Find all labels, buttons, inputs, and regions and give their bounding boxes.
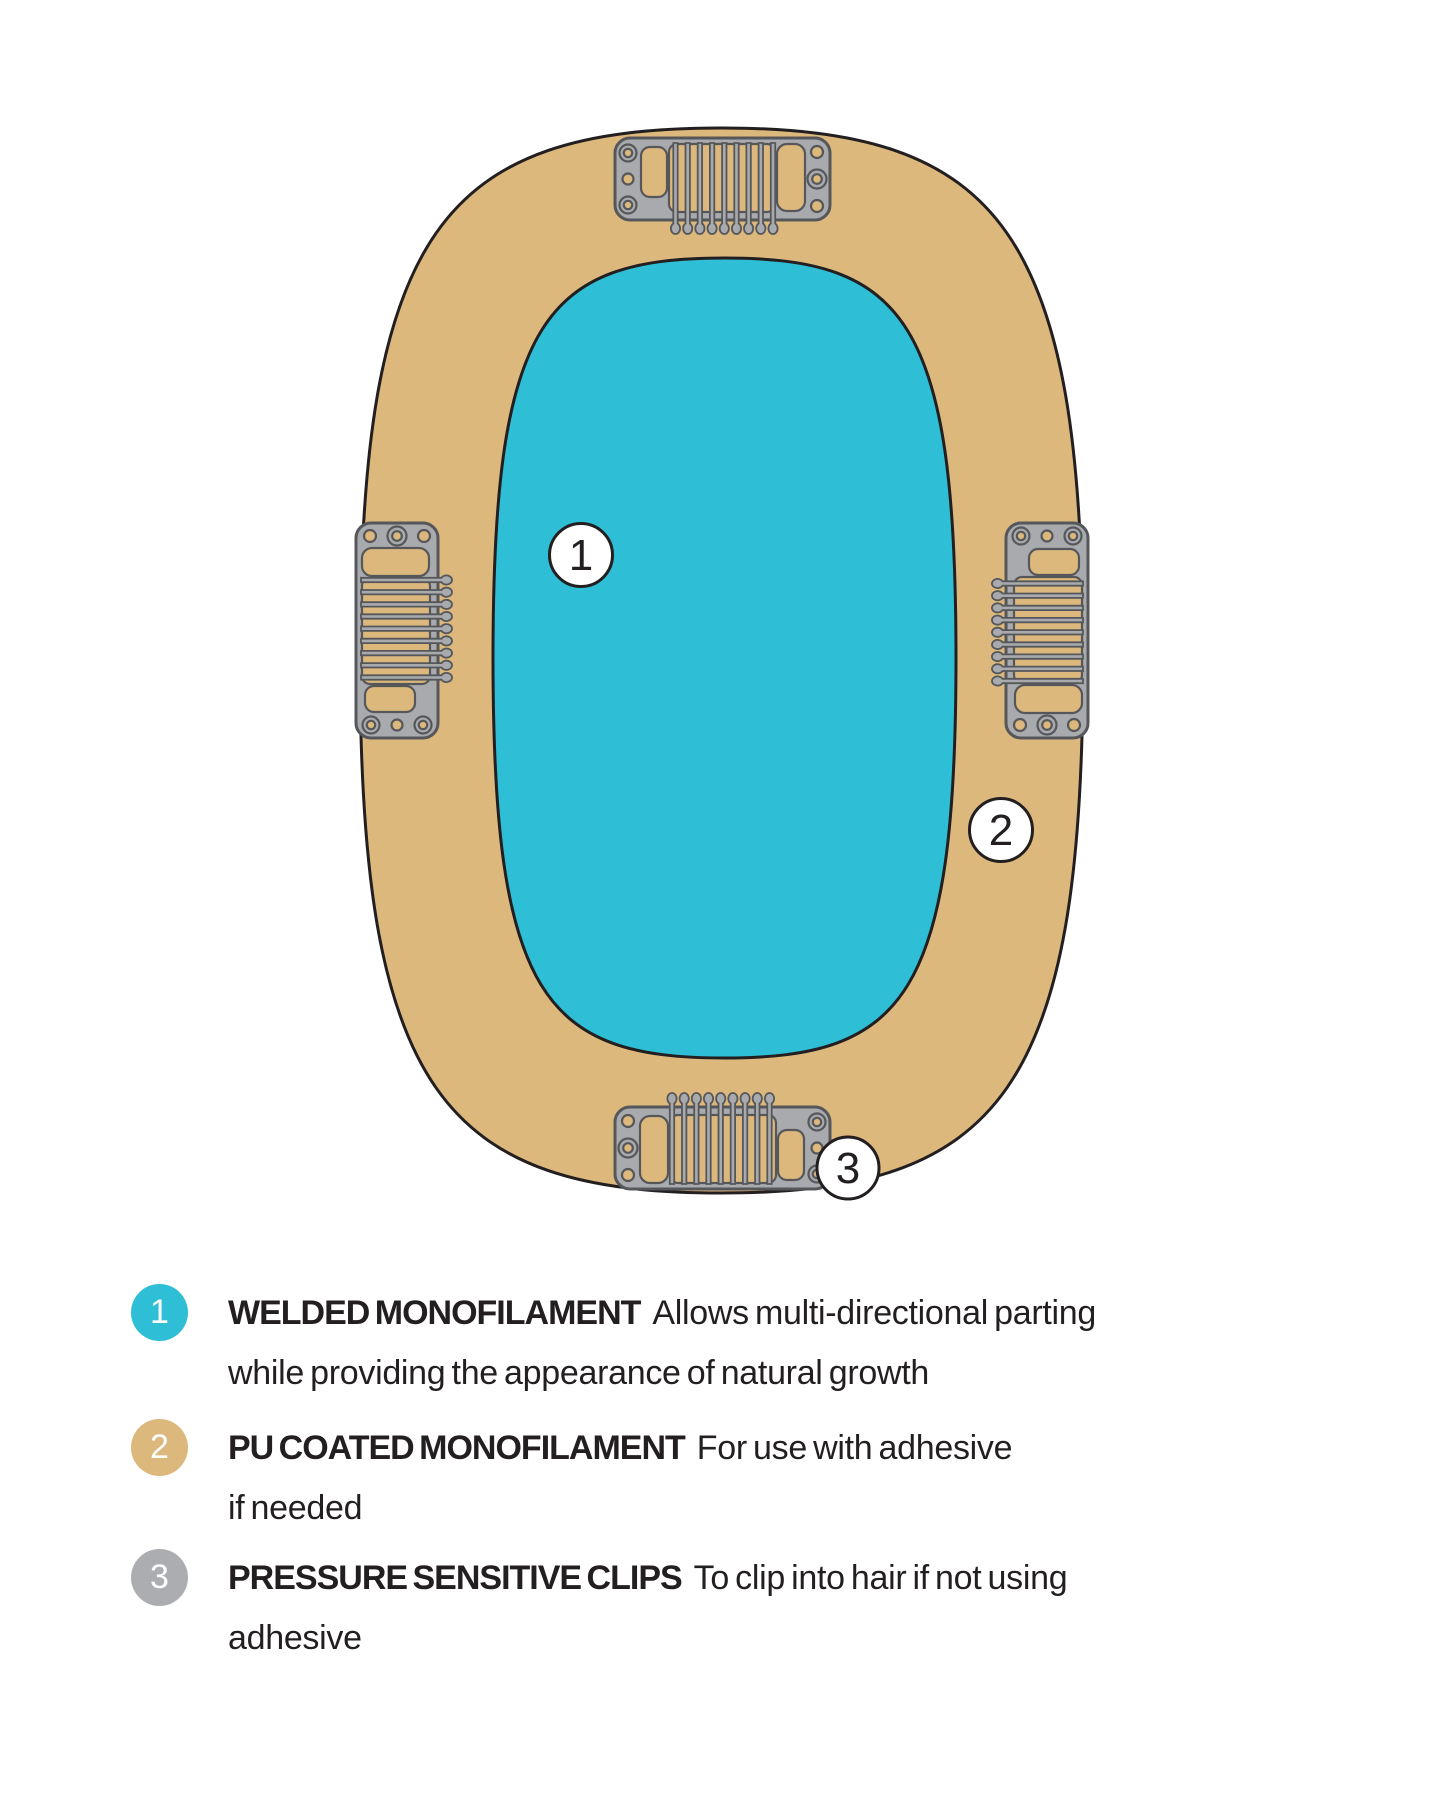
- pressure-clip-right: [992, 523, 1088, 738]
- legend-text-1: WELDED MONOFILAMENTAllows multi-directio…: [228, 1283, 1096, 1403]
- pressure-clip-left: [356, 523, 452, 738]
- legend-desc-3b: adhesive: [228, 1608, 1067, 1668]
- page: 1 2 3 1 WELDED MONOFILAMENTAllows multi-…: [0, 0, 1445, 1801]
- legend-badge-3: 3: [131, 1549, 188, 1606]
- legend-badge-2-number: 2: [150, 1428, 169, 1467]
- legend-desc-1b: while providing the appearance of natura…: [228, 1343, 1096, 1403]
- legend-badge-3-number: 3: [150, 1558, 169, 1597]
- legend-line: PU COATED MONOFILAMENTFor use with adhes…: [228, 1418, 1012, 1478]
- pressure-clip-top: [615, 138, 830, 234]
- legend-badge-1: 1: [131, 1284, 188, 1341]
- callout-3: 3: [817, 1137, 879, 1199]
- legend-line: PRESSURE SENSITIVE CLIPSTo clip into hai…: [228, 1548, 1067, 1608]
- callout-2: 2: [970, 799, 1033, 862]
- welded-monofilament-area: [493, 258, 956, 1058]
- callout-3-number: 3: [836, 1144, 860, 1193]
- legend-term-2: PU COATED MONOFILAMENT: [228, 1429, 685, 1467]
- legend-text-3: PRESSURE SENSITIVE CLIPSTo clip into hai…: [228, 1548, 1067, 1668]
- legend-text-2: PU COATED MONOFILAMENTFor use with adhes…: [228, 1418, 1012, 1538]
- pressure-clip-bottom: [615, 1093, 830, 1189]
- callout-1-number: 1: [569, 531, 593, 580]
- callout-1: 1: [550, 524, 613, 587]
- legend-term-1: WELDED MONOFILAMENT: [228, 1294, 640, 1332]
- hairpiece-base-diagram: 1 2 3: [0, 0, 1445, 1230]
- callout-2-number: 2: [989, 806, 1013, 855]
- legend-desc-3a: To clip into hair if not using: [694, 1559, 1068, 1597]
- legend-term-3: PRESSURE SENSITIVE CLIPS: [228, 1559, 682, 1597]
- legend-desc-2b: if needed: [228, 1478, 1012, 1538]
- legend-desc-1a: Allows multi-directional parting: [652, 1294, 1096, 1332]
- legend-line: WELDED MONOFILAMENTAllows multi-directio…: [228, 1283, 1096, 1343]
- legend-desc-2a: For use with adhesive: [697, 1429, 1012, 1467]
- legend-badge-2: 2: [131, 1419, 188, 1476]
- legend-badge-1-number: 1: [150, 1293, 169, 1332]
